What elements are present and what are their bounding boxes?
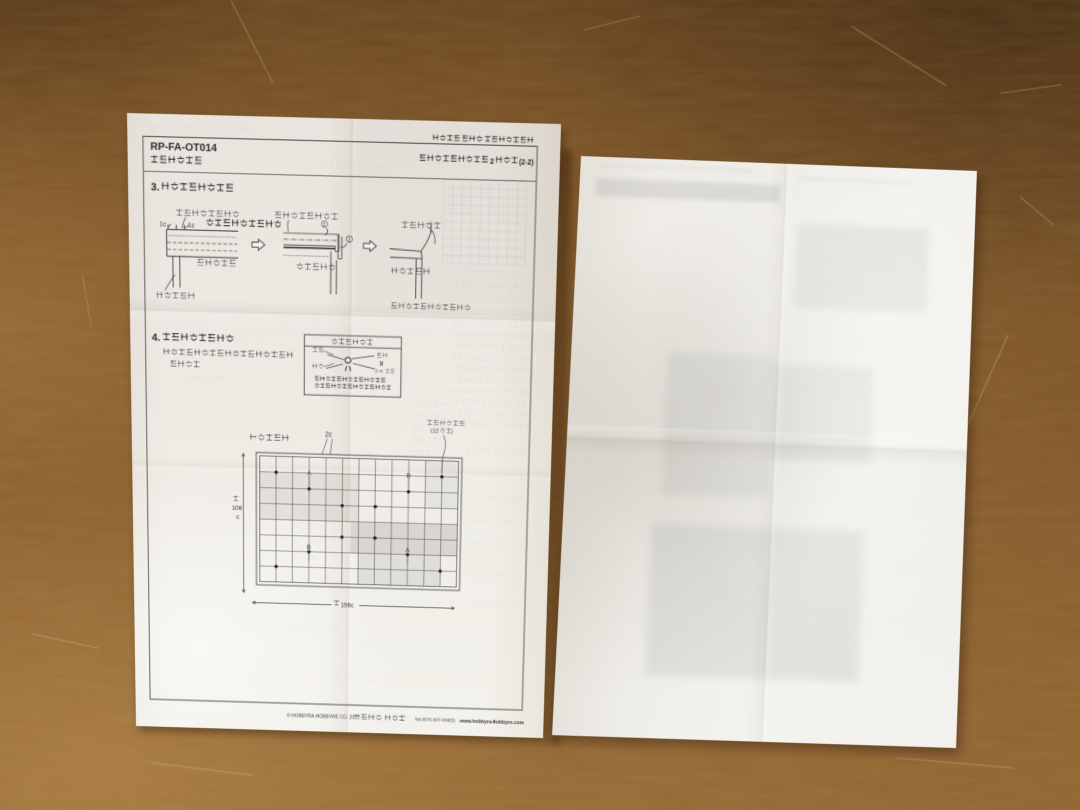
- svg-text:1c: 1c: [188, 222, 196, 229]
- svg-text:www.hobbyra-hobbyre.com: www.hobbyra-hobbyre.com: [459, 719, 524, 726]
- svg-text:(2-2): (2-2): [519, 157, 535, 167]
- svg-text:): ): [451, 429, 453, 435]
- svg-text:c: c: [236, 514, 240, 521]
- svg-text:3.: 3.: [151, 181, 160, 193]
- svg-text:1: 1: [348, 238, 351, 244]
- svg-text:2: 2: [323, 222, 326, 228]
- svg-text:1c: 1c: [159, 221, 167, 228]
- svg-text:4.: 4.: [152, 332, 161, 344]
- svg-text:© HOBBYRA HOBBYRE CO. 2022: © HOBBYRA HOBBYRE CO. 2022: [287, 712, 360, 721]
- svg-text:2c: 2c: [325, 430, 333, 439]
- svg-text:2: 2: [490, 157, 494, 166]
- svg-text:Tel.0576-607-838(5): Tel.0576-607-838(5): [414, 717, 455, 724]
- svg-text:(12: (12: [431, 429, 439, 435]
- svg-text:RP-FA-OT014: RP-FA-OT014: [150, 141, 217, 155]
- svg-text:A: A: [307, 470, 312, 477]
- svg-text:###: ###: [354, 714, 359, 718]
- svg-text:B: B: [407, 473, 411, 480]
- svg-text:B: B: [307, 544, 311, 551]
- svg-text:106: 106: [232, 505, 243, 512]
- svg-text:156c: 156c: [341, 602, 355, 609]
- svg-text:2~4: 2~4: [375, 369, 383, 375]
